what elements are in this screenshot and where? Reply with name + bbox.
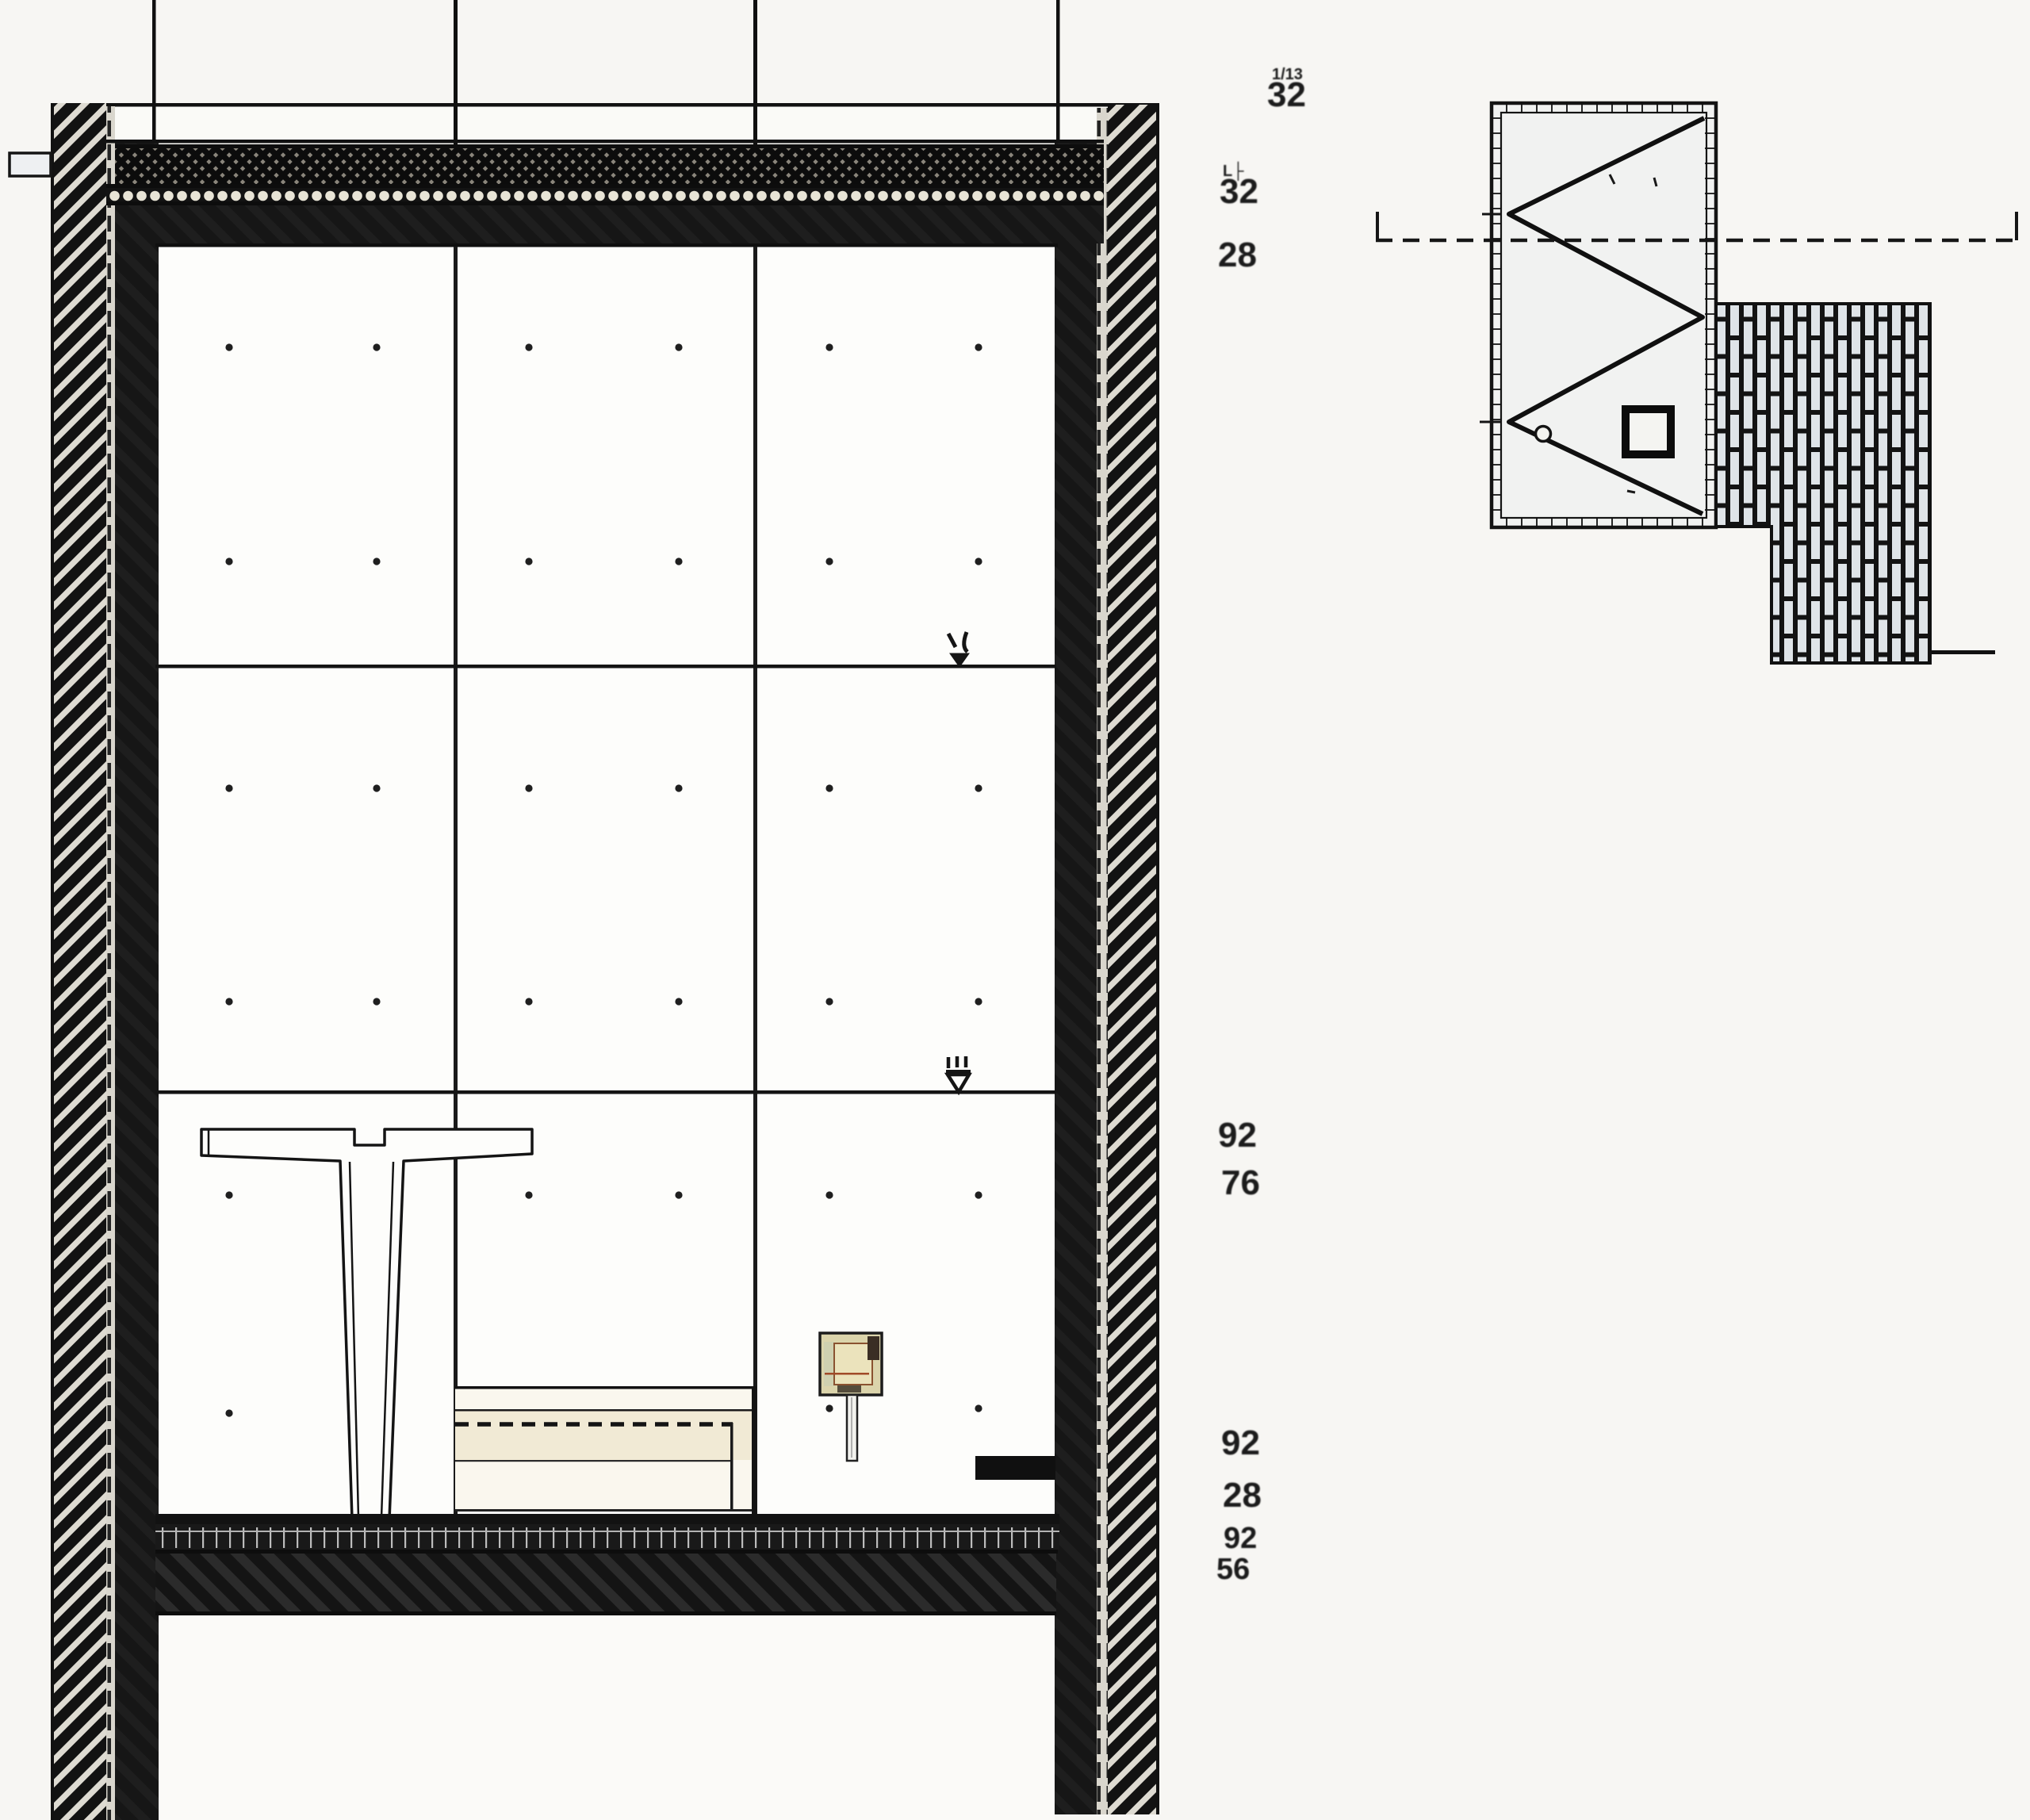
svg-text:56: 56 [1216,1553,1250,1586]
svg-text:92: 92 [1218,1116,1257,1155]
svg-text:1/13: 1/13 [1272,66,1303,83]
svg-text:76: 76 [1221,1163,1260,1202]
svg-text:92: 92 [1221,1423,1260,1462]
svg-text:92: 92 [1224,1522,1257,1555]
svg-text:28: 28 [1223,1476,1262,1515]
svg-text:L├: L├ [1223,161,1244,182]
svg-text:28: 28 [1218,236,1257,274]
